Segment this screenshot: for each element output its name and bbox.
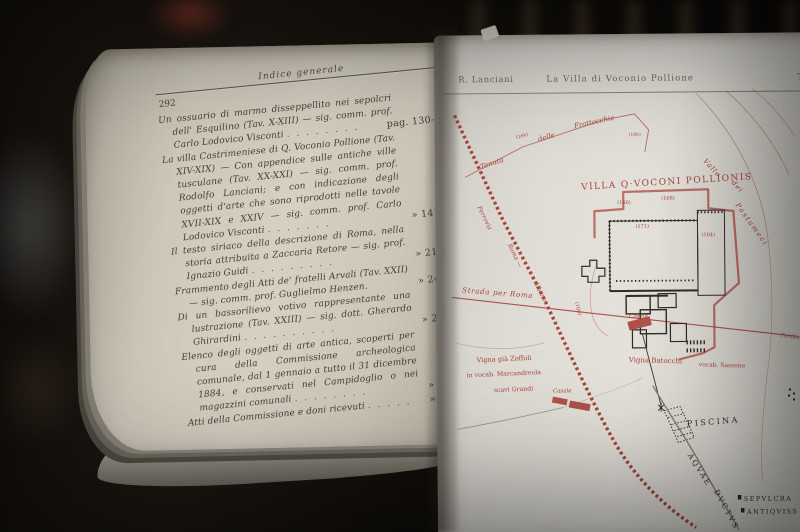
index-header: Indice generale	[155, 54, 449, 93]
railway-label-1: Ferrovia	[475, 204, 493, 231]
road-line	[452, 294, 798, 339]
railway-label-2: Roma —	[505, 242, 523, 269]
background-gray-object	[0, 130, 82, 320]
strada-label: Strada per Roma	[462, 285, 534, 300]
contour-line	[752, 88, 794, 136]
vigna-zoffoli-label-1: Vigna già Zoffoli	[475, 353, 531, 364]
piscina-label: PISCINA	[687, 415, 740, 428]
villa-terrace-wall	[594, 189, 739, 360]
right-page: R. Lanciani La Villa di Voconio Pollione…	[434, 32, 800, 532]
elevation-label: (166)	[617, 199, 631, 206]
elevation-label: (160)	[573, 301, 583, 316]
railway-label-3: Albano	[532, 280, 548, 303]
vigna-zoffoli-label-3: scavi Grandi	[494, 385, 534, 394]
casale-label-2: Casale	[629, 314, 648, 320]
elevation-label: (168)	[661, 195, 675, 202]
aquae-ductus-label-1: AQVAE	[685, 451, 713, 488]
sepulcra-label-2: ANTIQVISS	[746, 507, 798, 515]
aquae-ductus-label-2: DVCTVS	[712, 488, 741, 531]
stream-line	[457, 408, 563, 430]
contour-line	[726, 91, 789, 176]
villa-map: Tenuta delle Frattocchie (166) (166) Val…	[434, 32, 800, 532]
elevation-label: (166)	[515, 131, 529, 141]
tenuta-label-1: Tenuta	[479, 156, 505, 171]
book-photo: Indice generale 292 Un ossuario di marmo…	[0, 0, 800, 532]
vocab-sassone-label: vocab. Sassone	[698, 361, 746, 369]
tomb-dots	[788, 388, 795, 400]
background-red-object	[148, 0, 234, 40]
tenuta-boundary-line	[465, 114, 650, 178]
vigna-zoffoli-label-2: in vocab. Marcandreola	[467, 369, 542, 379]
page-number: 292	[158, 99, 176, 111]
sepulcra-label-1: SEPVLCRA	[744, 495, 792, 503]
contour-line	[457, 343, 545, 349]
tenuta-label-3: Frattocchie	[572, 114, 615, 131]
sepulcra-marker	[741, 508, 745, 513]
elevation-label: (171)	[635, 223, 649, 230]
tenuta-label-2: delle	[537, 131, 556, 144]
book-gutter-shadow	[424, 26, 458, 532]
background-brown-object	[0, 330, 80, 450]
vigna-batocchi-label: Vigna Batocchi	[628, 356, 683, 365]
casale-label-1: Casale	[553, 388, 572, 394]
elevation-label: (164)	[702, 231, 716, 238]
fontanile-label: Fontan	[779, 333, 800, 342]
valle-label-3: Pastumeci	[733, 201, 770, 248]
sepulcra-marker	[738, 495, 742, 500]
contour-line	[759, 228, 773, 481]
left-page: Indice generale 292 Un ossuario di marmo…	[84, 42, 464, 452]
elevation-label: (166)	[629, 131, 641, 138]
